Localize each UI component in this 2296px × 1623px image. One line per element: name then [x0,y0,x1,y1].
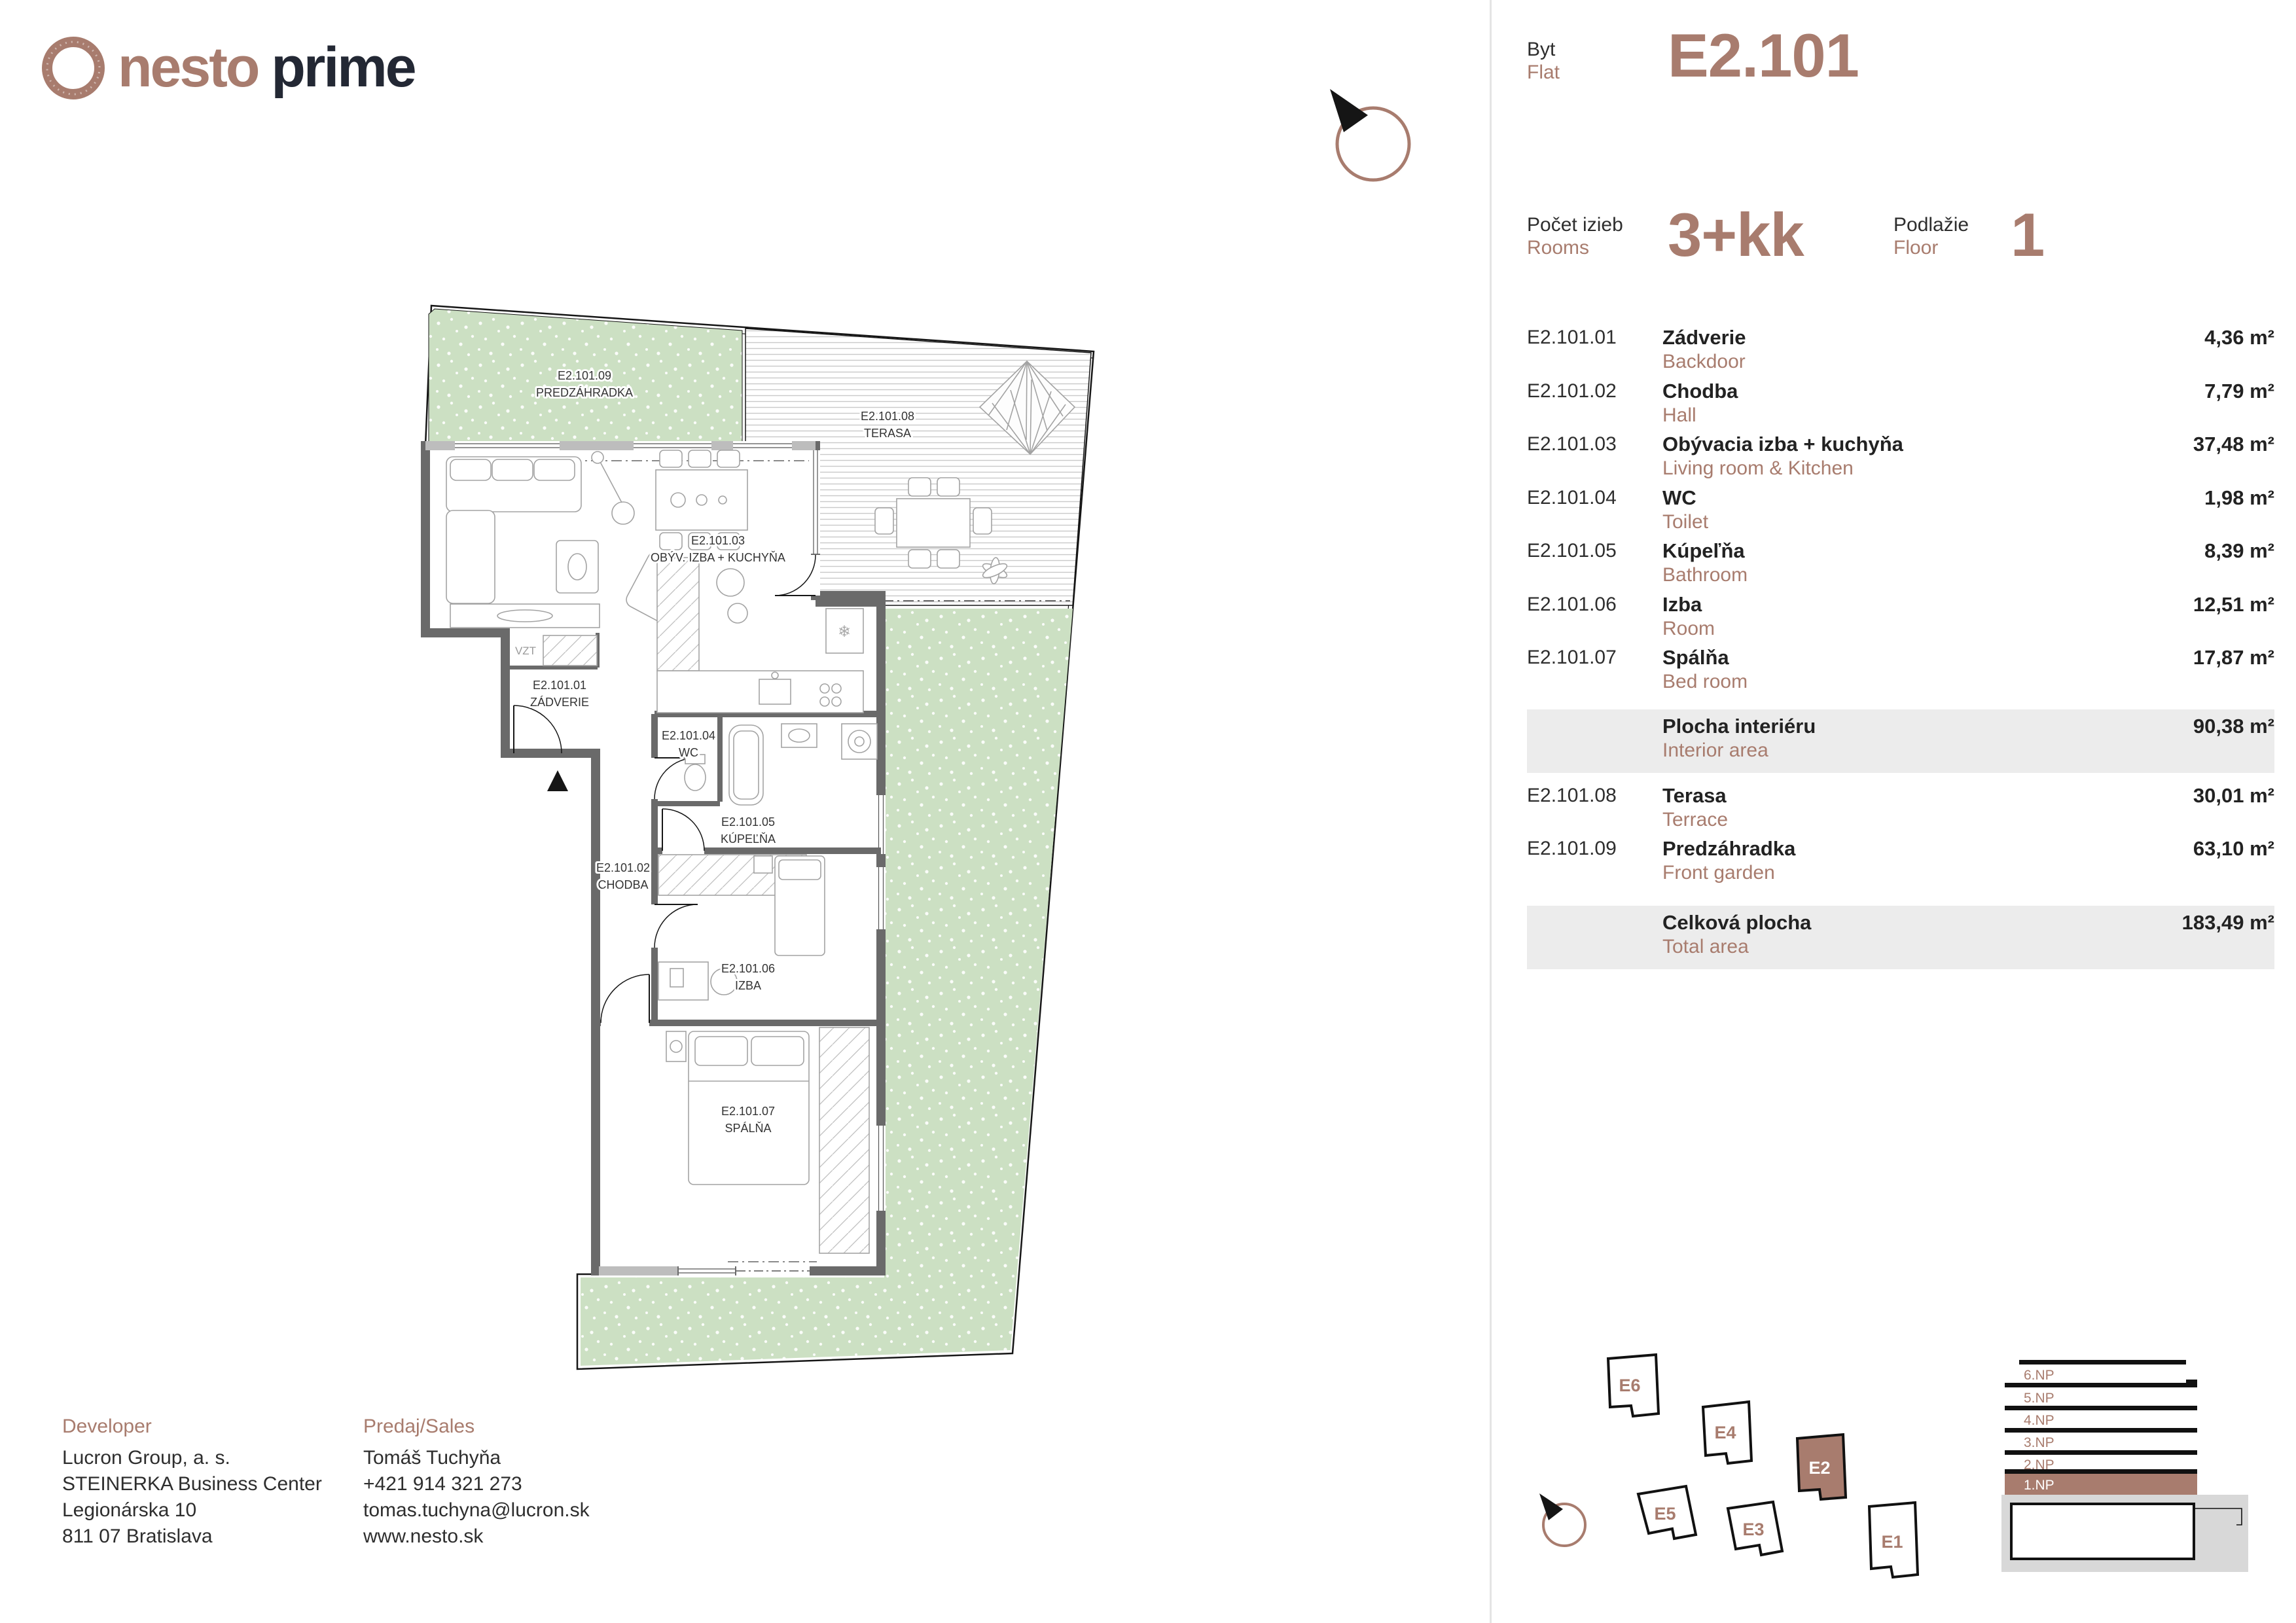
developer-line: STEINERKA Business Center [62,1471,322,1497]
floor-label-en: Floor [1893,236,1969,259]
room-label-code: E2.101.01 [533,679,586,692]
interior-area-summary: Plocha interiéruInterior area90,38 m² [1527,709,2274,773]
room-label-code: E2.101.07 [721,1105,775,1118]
entrance-arrow-icon [547,770,568,791]
sales-email[interactable]: tomas.tuchyna@lucron.sk [363,1497,590,1524]
table-row: E2.101.02ChodbaHall7,79 m² [1527,380,2274,433]
table-row: E2.101.08TerasaTerrace30,01 m² [1527,784,2274,838]
flat-label: Byt Flat [1527,38,1560,84]
room-label-name: TERASA [864,427,911,440]
rooms-label-en: Rooms [1527,236,1623,259]
brand-word2: prime [271,36,414,99]
room-label-code: E2.101.09 [558,369,611,382]
bottom-wall-windows [599,1266,810,1275]
room-label-code: E2.101.02 [596,861,650,874]
top-wall-windows [425,441,816,450]
flat-number: E2.101 [1668,25,1859,86]
table-row: E2.101.04WCToilet1,98 m² [1527,486,2274,540]
developer-line: Lucron Group, a. s. [62,1445,322,1471]
table-row: E2.101.03Obývacia izba + kuchyňaLiving r… [1527,433,2274,486]
developer-block: Developer Lucron Group, a. s. STEINERKA … [62,1414,322,1550]
siteplan-block-label: E6 [1619,1376,1640,1395]
table-row: E2.101.01ZádverieBackdoor4,36 m² [1527,326,2274,380]
rooms-label: Počet izieb Rooms [1527,213,1623,259]
rooms-value: 3+kk [1668,204,1804,266]
room-label-name: WC [679,746,698,759]
sales-label: Predaj/Sales [363,1414,590,1440]
total-area-summary: Celková plochaTotal area183,49 m² [1527,906,2274,969]
floorstack-label-4.NP: 4.NP [2024,1413,2054,1428]
siteplan-block-label: E3 [1742,1520,1764,1539]
table-row: E2.101.05KúpeľňaBathroom8,39 m² [1527,539,2274,593]
siteplan-block-label: E5 [1654,1504,1676,1524]
siteplan-diagram: E6E4E2E5E3E1 [1532,1335,1950,1597]
floorstack-label-1.NP: 1.NP [2024,1478,2054,1493]
room-label-name: SPÁLŇA [725,1122,771,1135]
brand-logo: nestoprime [41,34,348,109]
nesto-ring-icon [41,35,107,102]
floorstack-label-5.NP: 5.NP [2024,1391,2054,1406]
room-label-code: E2.101.05 [721,815,775,829]
developer-label: Developer [62,1414,322,1440]
sales-contact-name: Tomáš Tuchyňa [363,1445,590,1471]
siteplan-block-label: E2 [1808,1458,1830,1478]
room-label-name: IZBA [735,979,761,992]
table-row: E2.101.06IzbaRoom12,51 m² [1527,593,2274,647]
brand-wordmark: nestoprime [118,35,415,100]
sales-website[interactable]: www.nesto.sk [363,1524,590,1550]
panel-divider [1490,0,1492,1623]
table-row: E2.101.09PredzáhradkaFront garden63,10 m… [1527,837,2274,891]
siteplan-block-label: E1 [1881,1532,1903,1552]
flat-label-en: Flat [1527,61,1560,84]
siteplan-compass-icon [1539,1493,1585,1546]
flat-label-sk: Byt [1527,38,1560,61]
floorstack-diagram: 6.NP5.NP4.NP3.NP2.NP1.NP [1990,1348,2278,1584]
vzt-label: VZT [515,645,536,657]
north-compass-icon [1322,85,1433,200]
floor-value: 1 [2011,204,2044,266]
room-label-code: E2.101.03 [691,534,745,547]
sales-phone[interactable]: +421 914 321 273 [363,1471,590,1497]
floorstack-label-3.NP: 3.NP [2024,1435,2054,1450]
room-label-name: OBÝV. IZBA + KUCHYŇA [651,551,785,564]
svg-text:❄: ❄ [838,623,851,641]
sales-block: Predaj/Sales Tomáš Tuchyňa +421 914 321 … [363,1414,590,1550]
rooms-label-sk: Počet izieb [1527,213,1623,236]
table-row: E2.101.07SpálňaBed room17,87 m² [1527,646,2274,700]
floor-label: Podlažie Floor [1893,213,1969,259]
floorplan-sheet: nestoprime Byt Flat E2.101 Počet izieb R… [0,0,2296,1623]
siteplan-block-label: E4 [1714,1423,1736,1442]
developer-line: Legionárska 10 [62,1497,322,1524]
floorstack-label-6.NP: 6.NP [2024,1368,2054,1383]
room-label-name: CHODBA [598,878,648,891]
room-label-name: ZÁDVERIE [530,696,589,709]
room-label-name: KÚPEĽŇA [721,832,776,846]
floorplan-drawing: ❄ E2.101.09PREDZÁHRADKAE2.101.08TERASAE2… [393,275,1152,1400]
area-table: E2.101.01ZádverieBackdoor4,36 m²E2.101.0… [1527,326,2274,969]
room-label-code: E2.101.04 [662,729,715,742]
brand-word1: nesto [118,36,258,99]
room-label-name: PREDZÁHRADKA [536,386,633,399]
developer-line: 811 07 Bratislava [62,1524,322,1550]
room-label-code: E2.101.06 [721,962,775,975]
room-label-code: E2.101.08 [861,410,914,423]
floor-label-sk: Podlažie [1893,213,1969,236]
floorstack-label-2.NP: 2.NP [2024,1457,2054,1472]
